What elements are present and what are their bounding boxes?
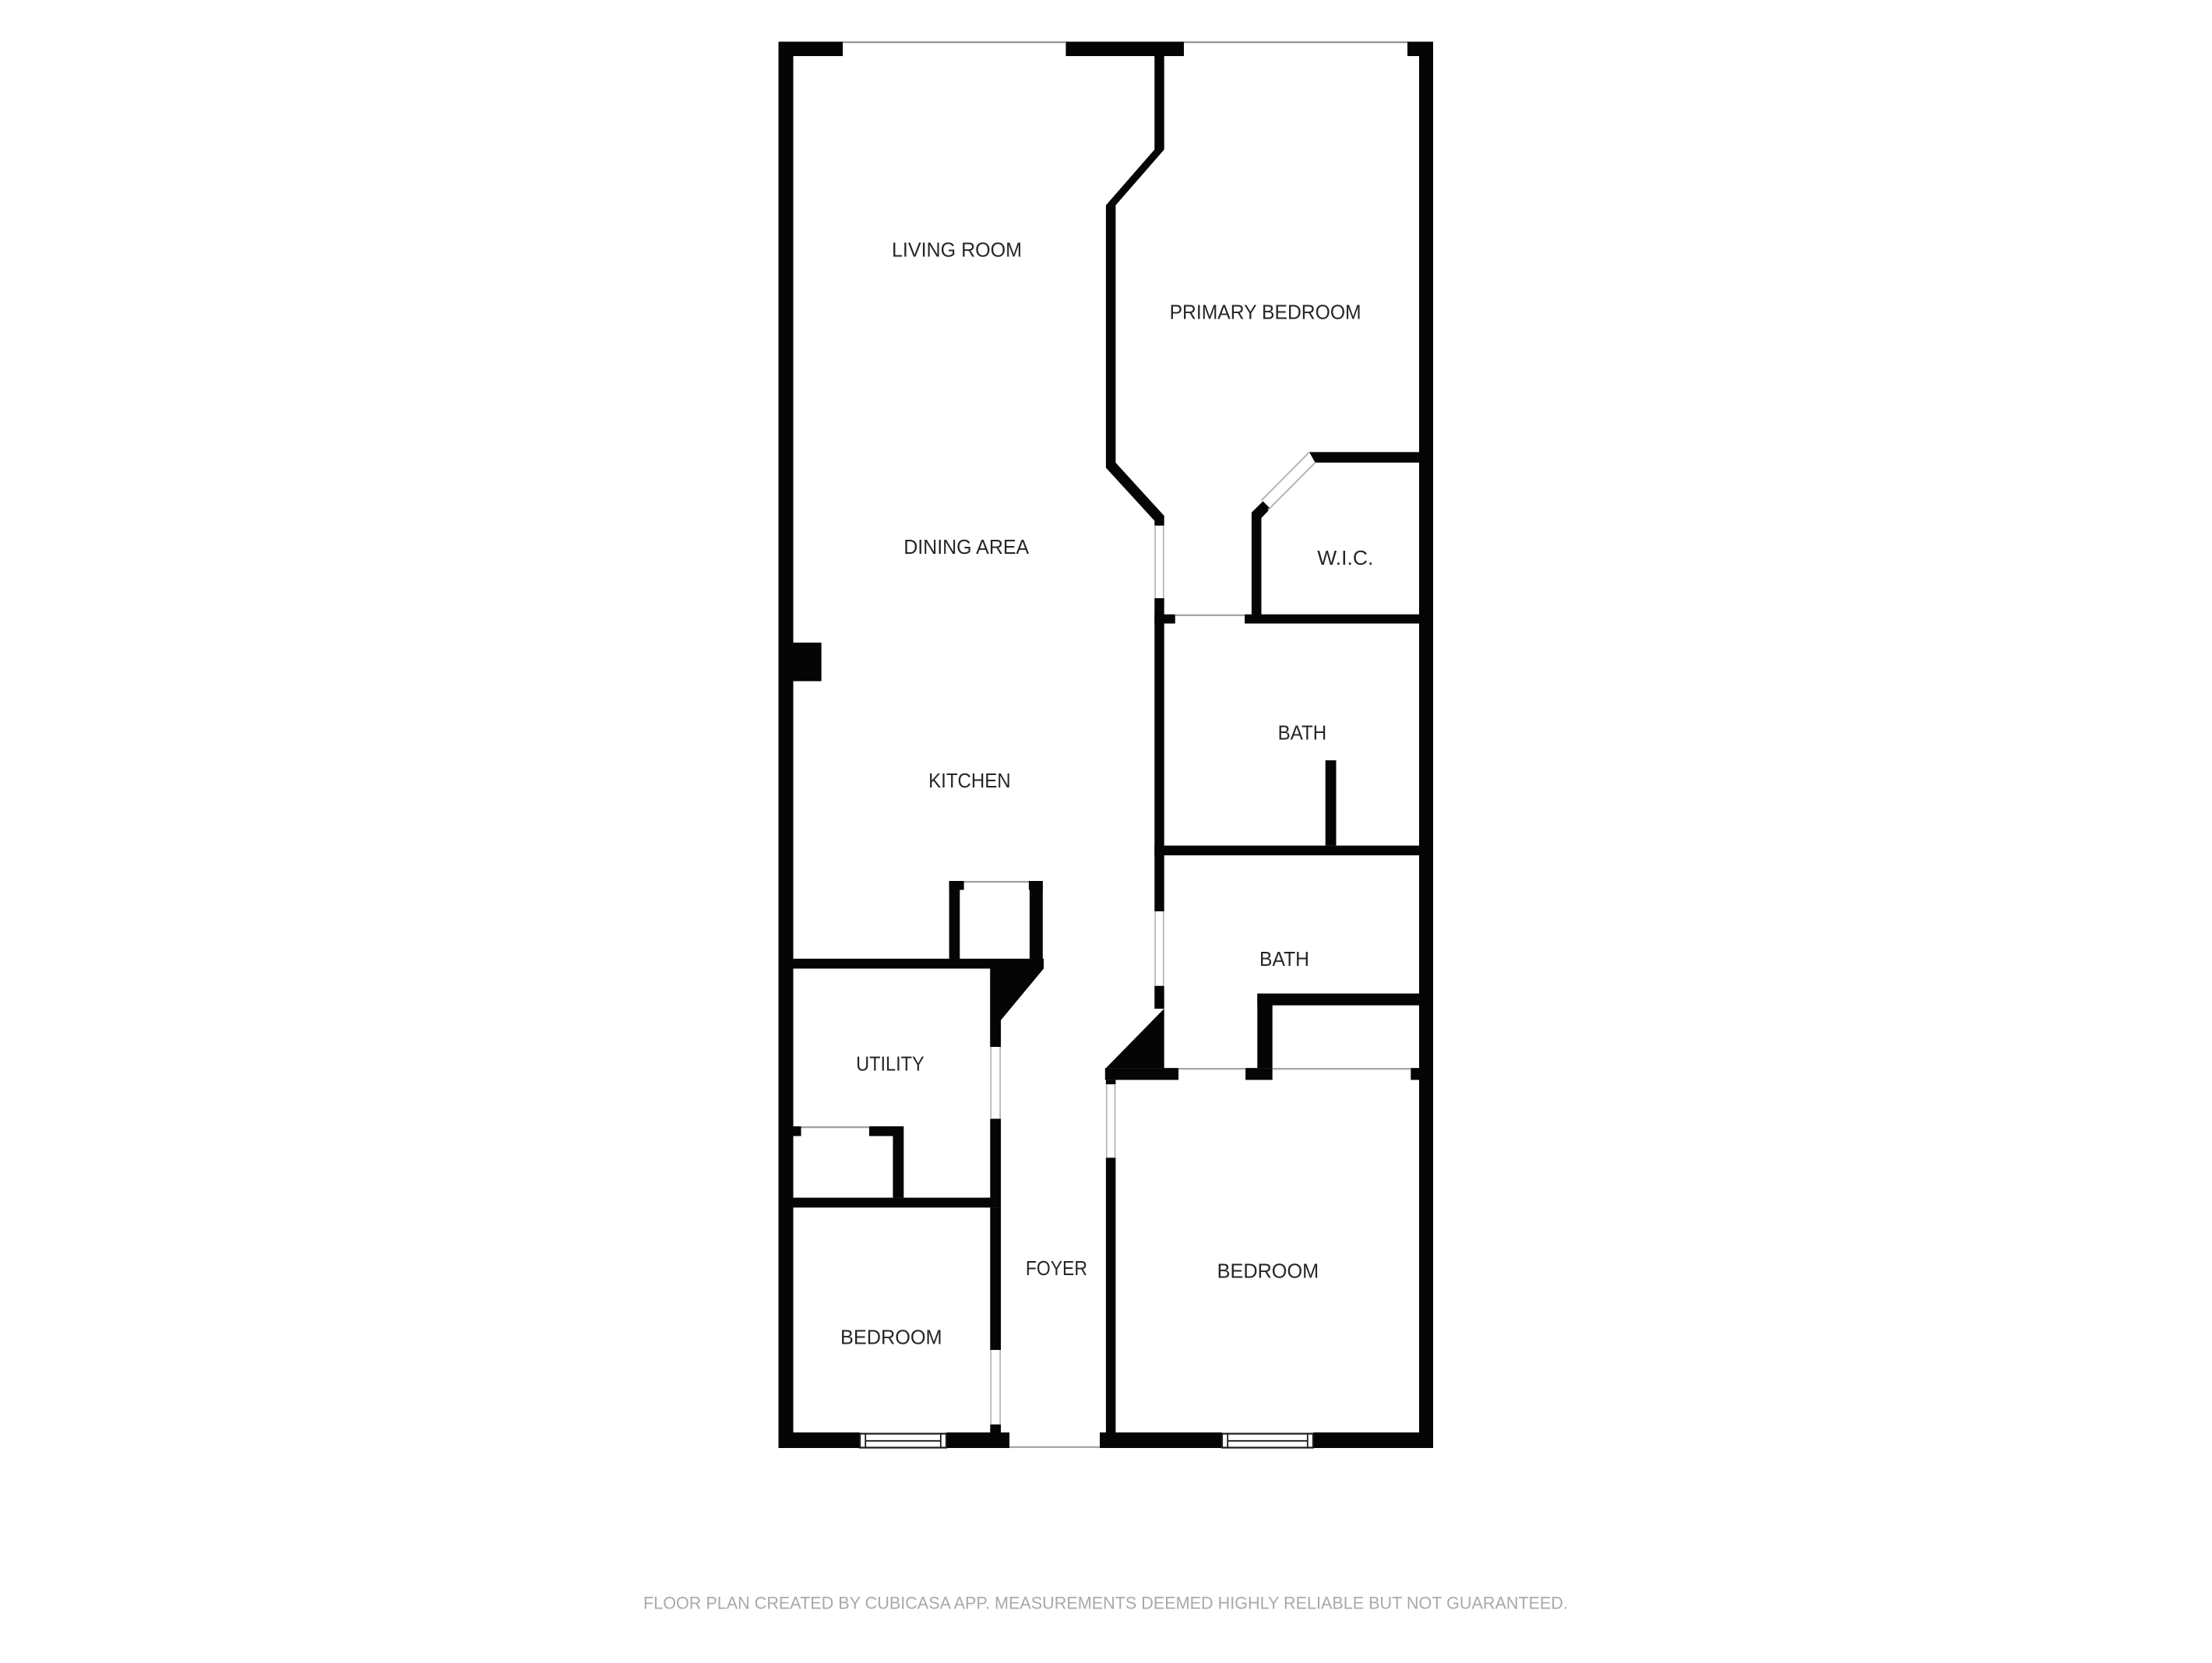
svg-text:FLOOR PLAN CREATED BY CUBICASA: FLOOR PLAN CREATED BY CUBICASA APP. MEAS… (643, 1594, 1568, 1613)
svg-text:UTILITY: UTILITY (856, 1053, 925, 1075)
svg-text:W.I.C.: W.I.C. (1317, 548, 1373, 569)
svg-text:BEDROOM: BEDROOM (1217, 1261, 1319, 1283)
svg-text:BATH: BATH (1278, 723, 1327, 745)
svg-text:KITCHEN: KITCHEN (928, 770, 1011, 792)
svg-text:PRIMARY BEDROOM: PRIMARY BEDROOM (1170, 302, 1361, 324)
svg-text:FOYER: FOYER (1026, 1258, 1087, 1280)
svg-text:LIVING ROOM: LIVING ROOM (892, 240, 1022, 262)
svg-text:DINING AREA: DINING AREA (903, 537, 1029, 558)
svg-text:BEDROOM: BEDROOM (840, 1327, 942, 1349)
svg-text:BATH: BATH (1259, 949, 1309, 971)
